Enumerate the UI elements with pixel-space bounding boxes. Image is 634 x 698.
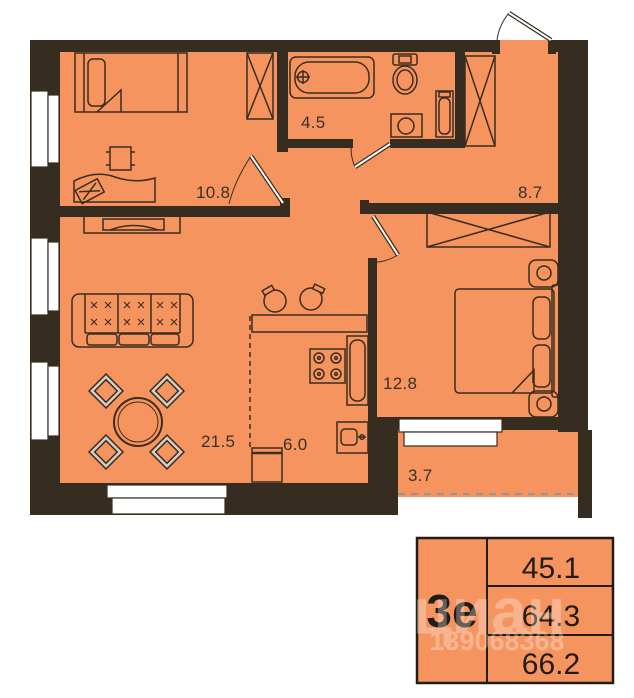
window-balcony — [399, 419, 502, 446]
watermark-id-text: 139068368 — [429, 626, 564, 656]
window-left-1 — [31, 91, 59, 167]
room-area-label-hallway: 8.7 — [518, 183, 543, 202]
room-area-label-kitchen: 6.0 — [283, 435, 308, 454]
room-area-label-bedroom-2: 12.8 — [383, 374, 417, 393]
room-area-label-balcony: 3.7 — [408, 466, 433, 485]
window-left-2 — [31, 238, 59, 315]
watermark: циан 139068368 — [325, 561, 565, 656]
room-area-label-living-room: 21.5 — [201, 432, 235, 451]
watermark-logo-icon — [325, 561, 373, 605]
window-bottom-living — [107, 485, 227, 514]
room-area-label-bathroom: 4.5 — [301, 113, 326, 132]
floorplan-page: 10.8 4.5 8.7 21.5 6.0 12.8 3.7 3е 45.1 6… — [0, 0, 634, 698]
floor-plan: 10.8 4.5 8.7 21.5 6.0 12.8 3.7 3е 45.1 6… — [0, 0, 634, 698]
window-left-3 — [31, 362, 59, 440]
room-area-label-bedroom-1: 10.8 — [196, 183, 230, 202]
balcony-outer-strip — [398, 497, 578, 518]
entrance-door — [497, 13, 551, 40]
